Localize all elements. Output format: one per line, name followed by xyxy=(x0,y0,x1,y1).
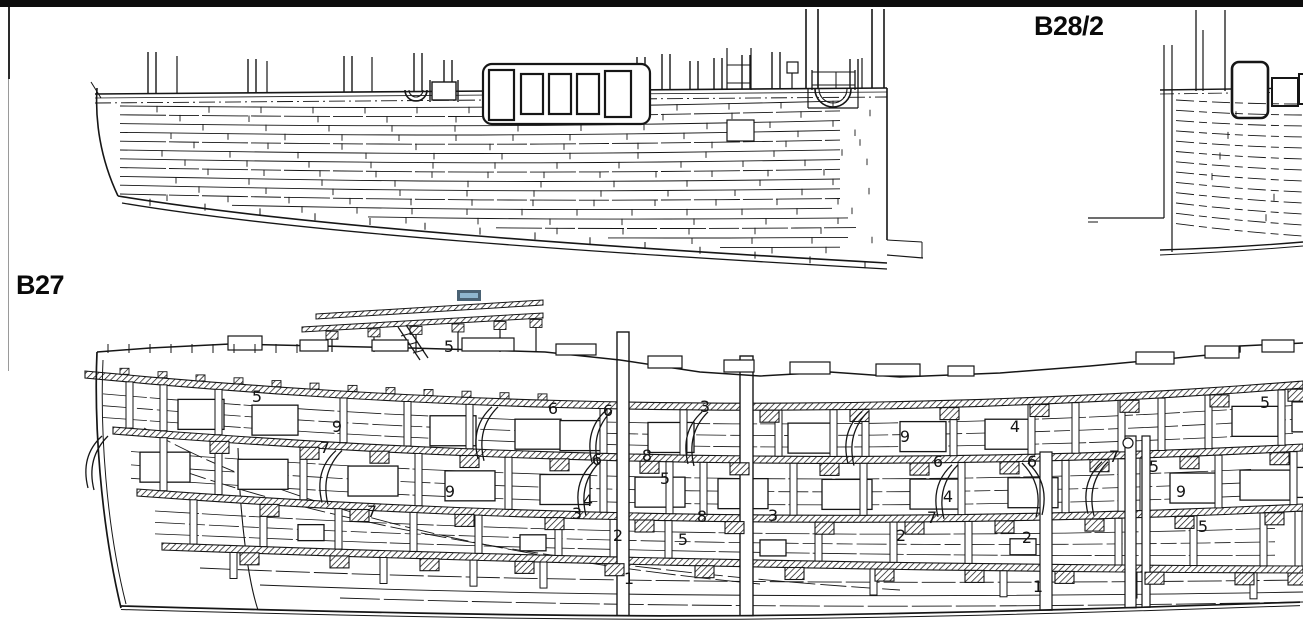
outboard-planking-drawing xyxy=(91,9,1303,269)
ship-plan-page: B28/2 B27 559766394686675594493825732255… xyxy=(0,0,1303,625)
hull-drawings xyxy=(0,0,1303,625)
inboard-structure-drawing xyxy=(85,300,1303,619)
